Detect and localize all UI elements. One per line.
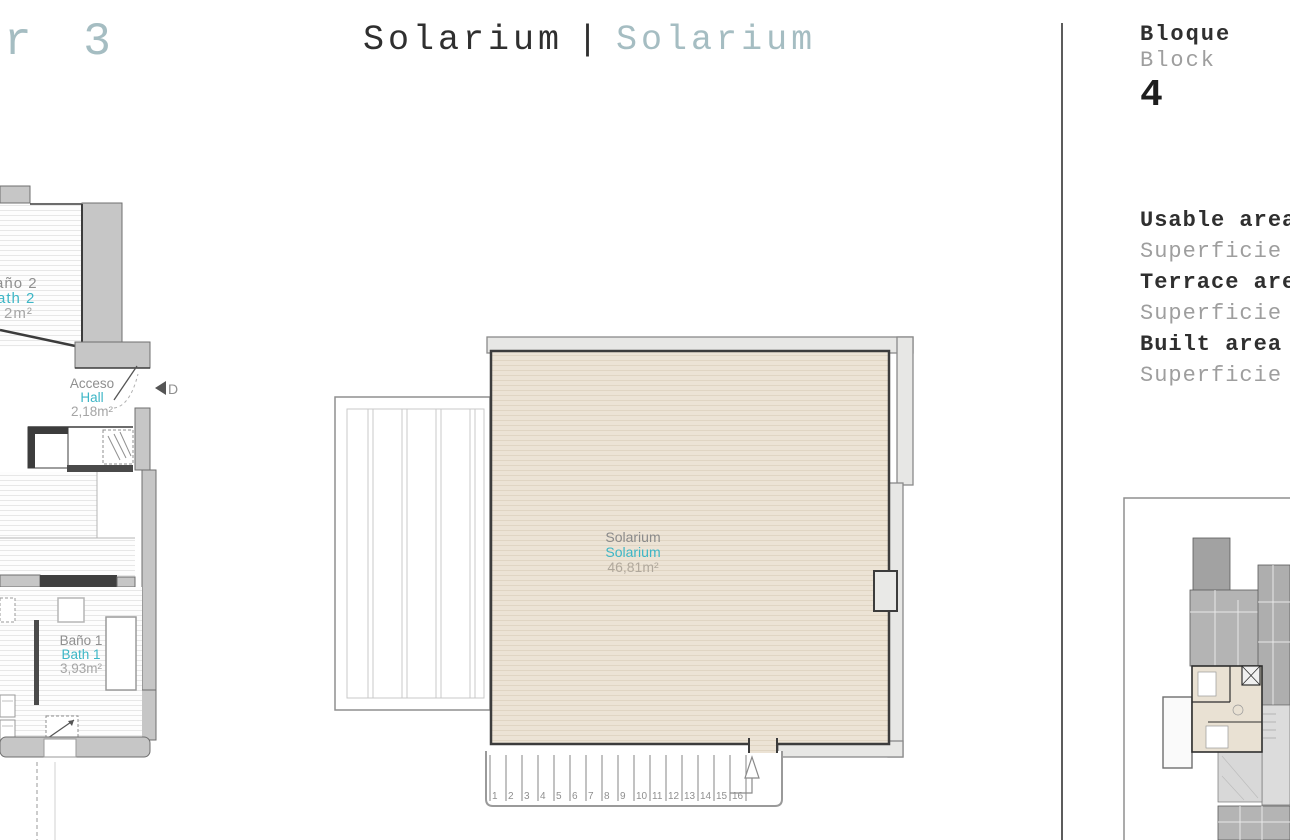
hall-label-en: Hall (80, 390, 103, 405)
solarium-label-es: Solarium (605, 529, 660, 545)
bath2-area: 2m² (4, 305, 33, 322)
wall (67, 465, 133, 472)
stair-number: 2 (508, 791, 514, 802)
wall (135, 408, 150, 470)
wall (142, 470, 156, 690)
bath1-label-es: Baño 1 (60, 633, 103, 648)
solarium-plan: 12345678910111213141516 Solarium Solariu… (335, 337, 913, 806)
corridor (1262, 705, 1290, 805)
stair-number: 7 (588, 791, 594, 802)
stair-number: 4 (540, 791, 546, 802)
floor-patch (97, 472, 135, 538)
wall (75, 342, 150, 368)
key-plan (1124, 498, 1290, 840)
hall-label-es: Acceso (70, 376, 114, 391)
wall (40, 575, 117, 587)
pergola-beam (368, 409, 373, 698)
stair-number: 6 (572, 791, 578, 802)
fixture (0, 598, 15, 622)
building-mass (1218, 806, 1290, 840)
door-opening (44, 739, 76, 757)
toilet (0, 695, 15, 717)
building-mass (1193, 538, 1230, 592)
hall-area: 2,18m² (71, 404, 114, 419)
sink (58, 598, 84, 622)
wall-notch (874, 571, 897, 611)
terrace-outline (1163, 697, 1192, 768)
parapet (897, 337, 913, 485)
entry-arrow-icon (155, 381, 166, 395)
stair-number: 11 (652, 791, 663, 802)
pergola-beam (436, 409, 441, 698)
solarium-room (491, 351, 889, 744)
bed (1198, 672, 1216, 696)
stair-number: 1 (492, 791, 498, 802)
stair-number: 10 (636, 791, 648, 802)
left-plan: Baño 2 Bath 2 2m² Acceso Hall 2,18m² D (0, 186, 178, 840)
stair-number: 9 (620, 791, 626, 802)
wall (82, 203, 122, 343)
stair-number: 3 (524, 791, 530, 802)
door-leaf (114, 366, 137, 400)
stair-number: 5 (556, 791, 562, 802)
building-mass (1190, 590, 1260, 666)
bath1-area: 3,93m² (60, 661, 103, 676)
building-mass (1258, 565, 1290, 705)
appliance-symbol (103, 430, 133, 464)
door-opening (749, 738, 777, 753)
stair-number: 15 (716, 791, 728, 802)
wall (34, 620, 39, 705)
wall (117, 577, 135, 587)
plan-sheet: r 3 Solarium|Solarium Bloque Block 4 Usa… (0, 0, 1290, 840)
stair-number: 14 (700, 791, 712, 802)
bath1-label-en: Bath 1 (61, 647, 100, 662)
stair-number: 8 (604, 791, 610, 802)
pergola-beam (470, 409, 475, 698)
bathtub (106, 617, 136, 690)
plan-drawing: Baño 2 Bath 2 2m² Acceso Hall 2,18m² D (0, 0, 1290, 840)
bed (1206, 726, 1228, 748)
entry-marker-letter: D (168, 381, 178, 397)
wall (0, 186, 30, 203)
closet-wall (28, 427, 35, 468)
solarium-label-en: Solarium (605, 544, 660, 560)
pergola-beam (402, 409, 407, 698)
pergola (335, 397, 490, 710)
wall (0, 575, 40, 587)
stair-number: 13 (684, 791, 696, 802)
stair-number: 12 (668, 791, 680, 802)
door-swing (114, 374, 138, 408)
solarium-area: 46,81m² (607, 559, 659, 575)
